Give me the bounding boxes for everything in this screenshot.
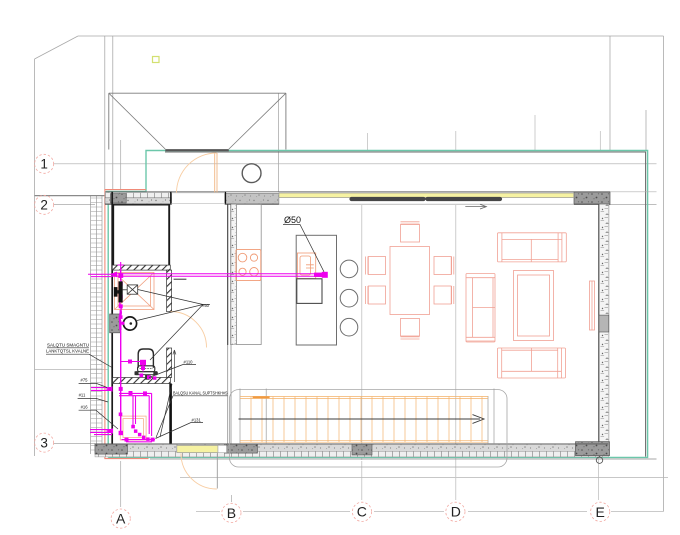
- svg-text:#16: #16: [81, 404, 89, 409]
- svg-text:A: A: [116, 511, 126, 527]
- svg-text:#75: #75: [81, 378, 89, 383]
- svg-text:B: B: [227, 505, 236, 521]
- svg-text:2: 2: [40, 198, 48, 213]
- svg-text:#50: #50: [202, 303, 210, 308]
- svg-text:SALQTU SMAGNTU: SALQTU SMAGNTU: [47, 342, 89, 347]
- svg-text:1: 1: [40, 157, 48, 172]
- svg-text:#131: #131: [192, 417, 202, 422]
- svg-text:LANKTQTSL KVALNE: LANKTQTSL KVALNE: [46, 349, 89, 354]
- svg-text:#11: #11: [79, 393, 86, 398]
- svg-text:D: D: [451, 504, 461, 520]
- svg-text:BALQSU KANAL SUPTSHKH#S: BALQSU KANAL SUPTSHKH#S: [173, 391, 228, 396]
- svg-text:Ø50: Ø50: [284, 215, 301, 225]
- svg-text:C: C: [357, 504, 367, 520]
- svg-text:3: 3: [40, 435, 48, 450]
- svg-text:E: E: [596, 504, 605, 520]
- svg-text:#110: #110: [184, 359, 194, 364]
